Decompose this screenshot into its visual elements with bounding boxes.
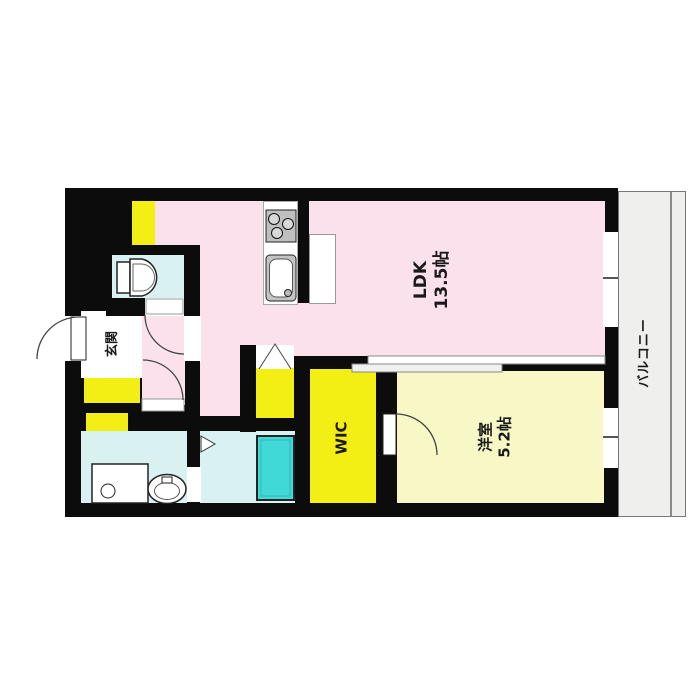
toilet-door [145, 298, 184, 316]
western-window [603, 408, 618, 468]
ldk-window [603, 232, 618, 327]
wall-wic-top [294, 356, 370, 369]
hall-vestibule [142, 315, 186, 405]
label-wic: WIC [333, 421, 352, 454]
western-window-divider [603, 436, 618, 438]
wall-vestibule-right [185, 361, 200, 431]
ldk-area: 13.5帖 [432, 251, 453, 310]
hall-closet [256, 368, 294, 418]
room-ldk [153, 201, 605, 357]
entrance-door-gap [65, 316, 81, 361]
closet-door-strip [256, 345, 294, 368]
label-ldk: LDK 13.5帖 [411, 251, 454, 310]
refrigerator-space [309, 234, 336, 304]
wic-name: WIC [333, 421, 352, 454]
kitchen-cabinet [132, 201, 155, 246]
ldk-window-divider [603, 277, 618, 279]
room-washroom [81, 431, 187, 503]
bathroom-door-gap [187, 467, 201, 502]
label-western-room: 洋室 5.2帖 [476, 416, 514, 458]
label-entrance: 玄関 [105, 331, 121, 357]
vestibule-opening [184, 316, 201, 362]
wall-toilet-right [184, 245, 200, 316]
balcony-railing-line [670, 192, 672, 516]
entrance-name: 玄関 [105, 331, 121, 357]
ldk-corridor [197, 357, 240, 416]
wall-closet-left [240, 345, 256, 432]
label-balcony: バルコニー [637, 318, 653, 388]
wall-toilet-bottom [106, 298, 145, 316]
western-name: 洋室 [476, 416, 495, 458]
floor-plan: LDK 13.5帖 洋室 5.2帖 WIC 玄関 バルコニー [0, 0, 700, 700]
shoe-cabinet [84, 378, 140, 403]
kitchen-counter [263, 201, 298, 305]
ldk-name: LDK [411, 251, 432, 310]
room-toilet [112, 255, 184, 298]
western-area: 5.2帖 [495, 416, 514, 458]
room-bathroom [200, 431, 295, 503]
balcony-name: バルコニー [637, 318, 653, 388]
